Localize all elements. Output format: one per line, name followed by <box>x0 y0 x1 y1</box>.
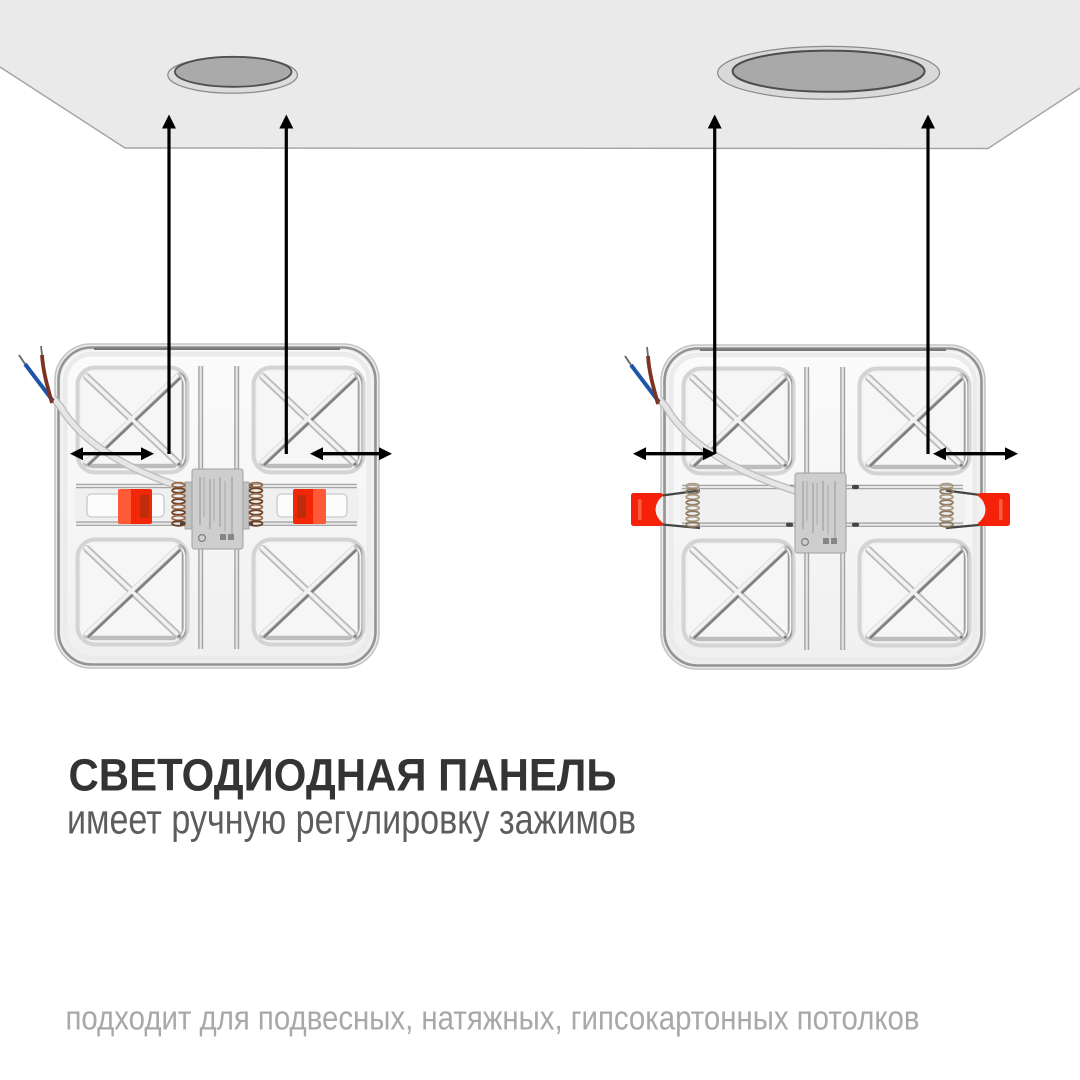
svg-text:подходит для подвесных, натяжн: подходит для подвесных, натяжных, гипсок… <box>66 1000 920 1038</box>
svg-text:СВЕТОДИОДНАЯ ПАНЕЛЬ: СВЕТОДИОДНАЯ ПАНЕЛЬ <box>69 750 617 801</box>
svg-text:имеет ручную регулировку зажим: имеет ручную регулировку зажимов <box>67 796 636 843</box>
